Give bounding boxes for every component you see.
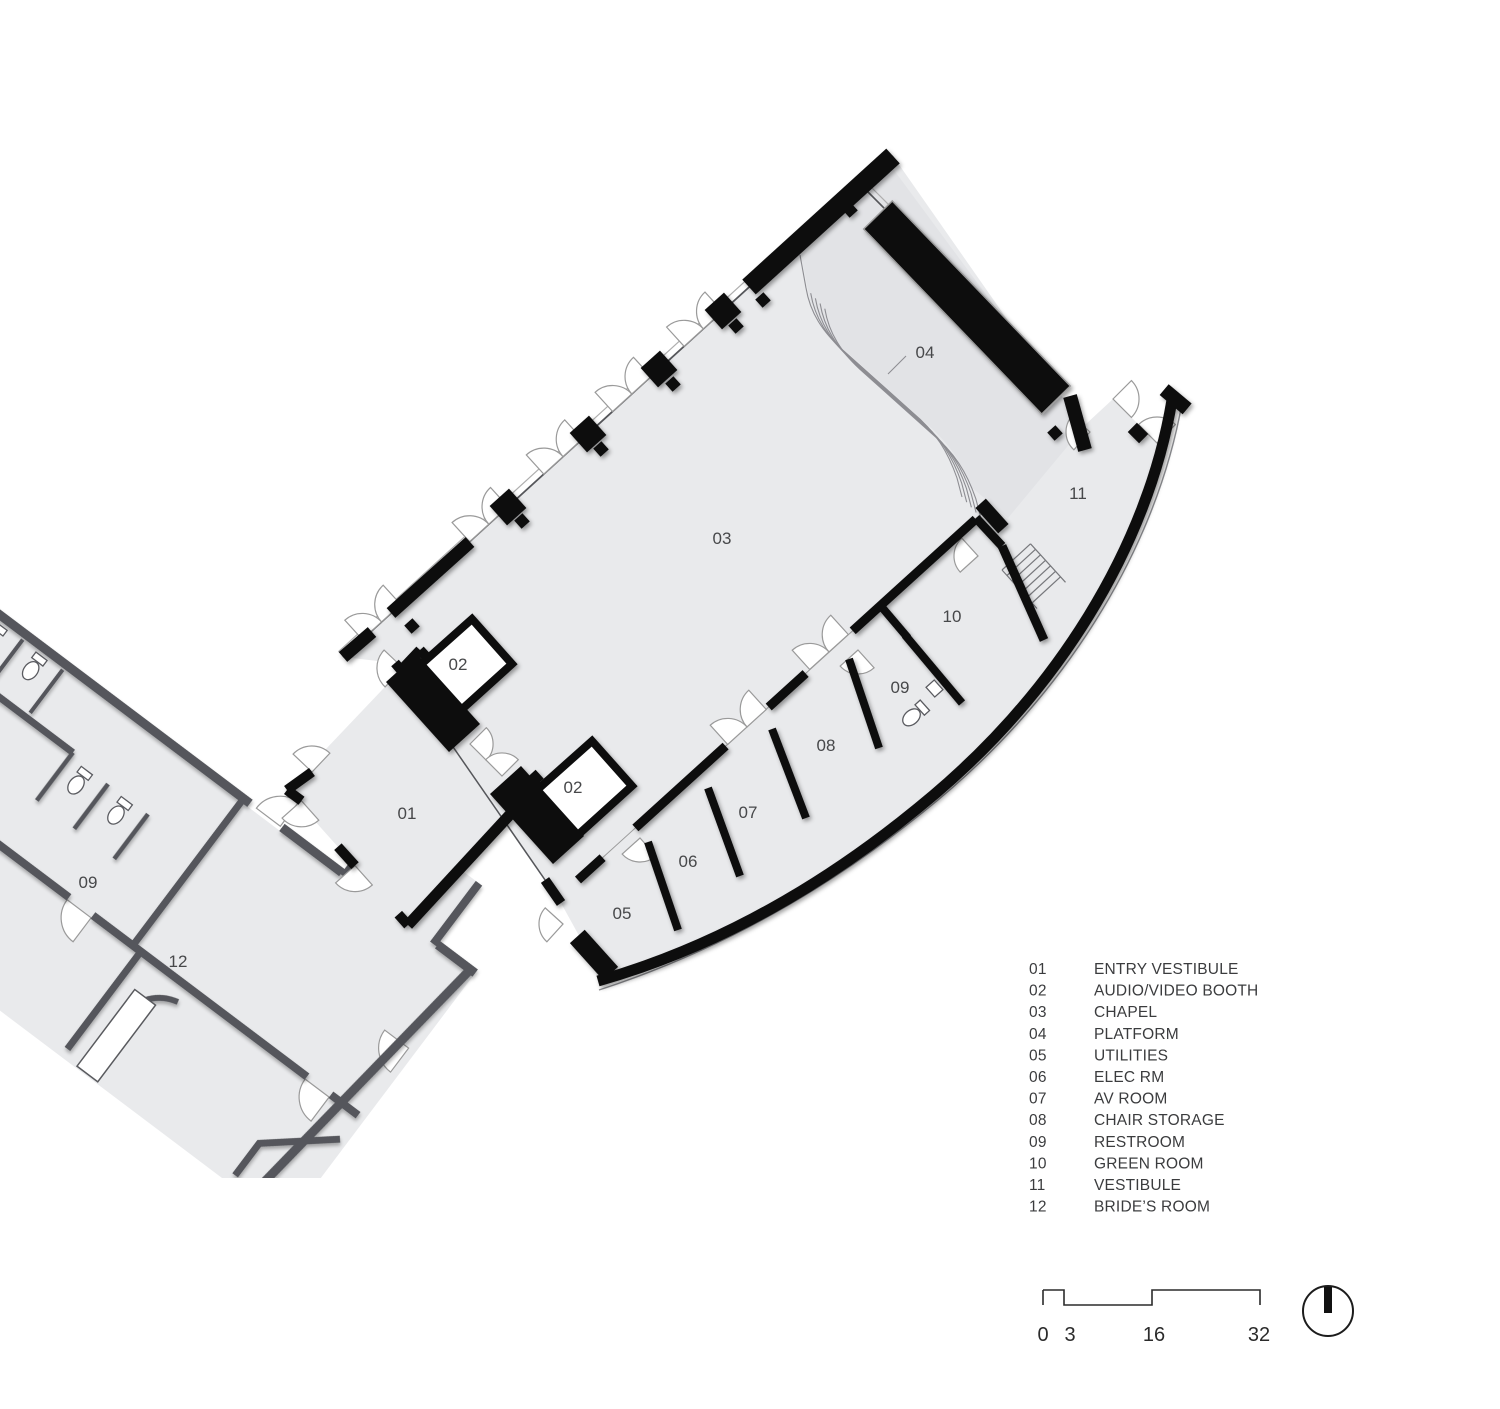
legend-number: 06 (1029, 1069, 1047, 1086)
legend-number: 08 (1029, 1112, 1047, 1129)
plan-room-label: 03 (713, 529, 732, 548)
legend-label: AUDIO/VIDEO BOOTH (1094, 983, 1258, 1000)
plan-room-label: 11 (1069, 484, 1087, 503)
legend-number: 11 (1029, 1177, 1046, 1194)
plan-room-label: 08 (817, 736, 836, 755)
plan-room-label: 01 (398, 804, 417, 823)
plan-room-label: 05 (613, 904, 632, 923)
scale-tick-16: 16 (1143, 1324, 1165, 1346)
scale-tick-3: 3 (1064, 1324, 1075, 1346)
legend-number: 09 (1029, 1134, 1047, 1151)
floor-plan-canvas: 0102020304050607080910110912 01ENTRY VES… (0, 0, 1500, 1409)
legend-number: 01 (1029, 961, 1047, 978)
legend-label: UTILITIES (1094, 1047, 1168, 1064)
plan-room-label: 02 (449, 655, 468, 674)
plan-room-label: 12 (169, 952, 188, 971)
legend-number: 07 (1029, 1091, 1047, 1108)
legend-label: BRIDE’S ROOM (1094, 1199, 1210, 1216)
north-needle (1324, 1287, 1332, 1313)
legend-label: PLATFORM (1094, 1026, 1179, 1043)
scale-tick-32: 32 (1248, 1324, 1270, 1346)
legend-number: 12 (1029, 1199, 1047, 1216)
plan-room-label: 10 (943, 607, 962, 626)
scale-tick-0: 0 (1037, 1324, 1048, 1346)
plan-room-label: 06 (679, 852, 698, 871)
legend-label: CHAPEL (1094, 1004, 1157, 1021)
plan-room-label: 09 (79, 873, 98, 892)
legend-label: CHAIR STORAGE (1094, 1112, 1225, 1129)
legend-label: ENTRY VESTIBULE (1094, 961, 1239, 978)
legend-number: 10 (1029, 1155, 1047, 1172)
plan-room-label: 02 (564, 778, 583, 797)
legend-label: AV ROOM (1094, 1091, 1167, 1108)
legend-number: 04 (1029, 1026, 1047, 1043)
legend-number: 03 (1029, 1004, 1047, 1021)
drawing-crop-mask (0, 1178, 1010, 1409)
plan-room-label: 04 (916, 343, 935, 362)
legend-label: RESTROOM (1094, 1134, 1185, 1151)
legend-number: 05 (1029, 1047, 1047, 1064)
legend-label: VESTIBULE (1094, 1177, 1181, 1194)
plan-room-label: 07 (739, 803, 758, 822)
legend-number: 02 (1029, 983, 1047, 1000)
legend-label: GREEN ROOM (1094, 1155, 1204, 1172)
plan-room-label: 09 (891, 678, 910, 697)
legend-label: ELEC RM (1094, 1069, 1164, 1086)
